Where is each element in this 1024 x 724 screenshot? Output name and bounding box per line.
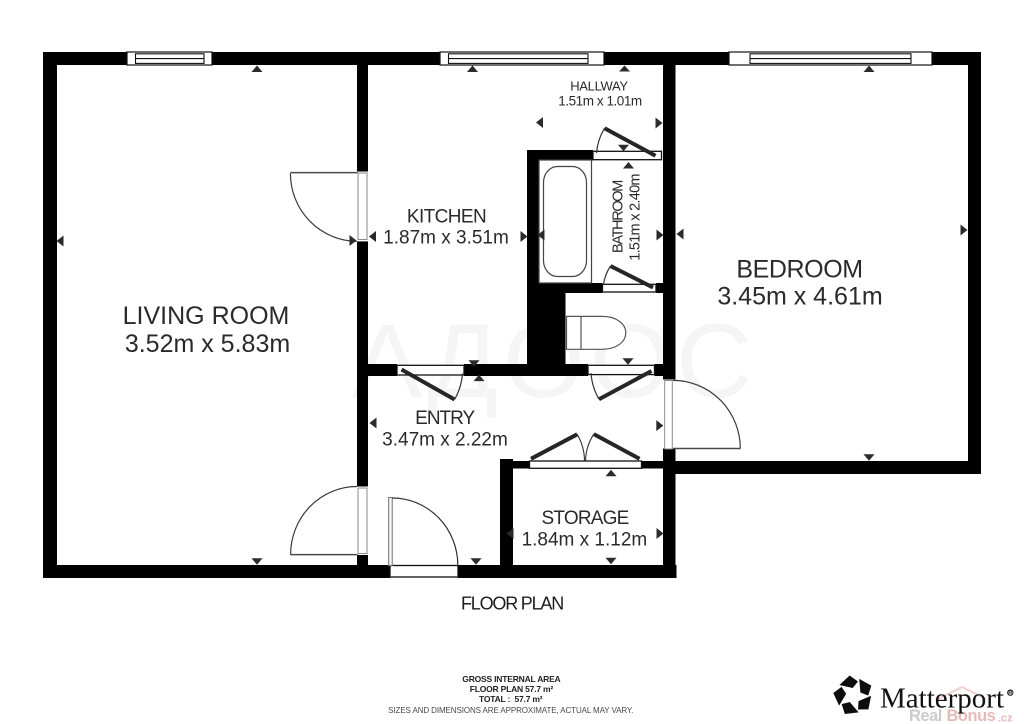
svg-text:ENTRY: ENTRY	[415, 408, 475, 429]
svg-text:BATHROOM: BATHROOM	[611, 181, 627, 253]
svg-text:KITCHEN: KITCHEN	[407, 206, 486, 227]
svg-text:1.87m x 3.51m: 1.87m x 3.51m	[383, 227, 509, 248]
svg-text:Matterport: Matterport	[880, 682, 1004, 714]
svg-text:LIVING ROOM: LIVING ROOM	[123, 302, 290, 330]
svg-text:HALLWAY: HALLWAY	[570, 79, 628, 94]
svg-text:1.51m x 2.40m: 1.51m x 2.40m	[628, 174, 644, 261]
svg-text:GROSS INTERNAL AREA: GROSS INTERNAL AREA	[462, 674, 560, 684]
svg-text:3.47m x 2.22m: 3.47m x 2.22m	[382, 429, 508, 450]
svg-text:FLOOR PLAN 57.7 m²: FLOOR PLAN 57.7 m²	[470, 684, 554, 694]
svg-text:FLOOR PLAN: FLOOR PLAN	[461, 593, 563, 613]
svg-text:BEDROOM: BEDROOM	[736, 256, 862, 284]
svg-text:TOTAL : 57.7 m²: TOTAL : 57.7 m²	[479, 694, 543, 704]
svg-text:R: R	[1008, 691, 1012, 697]
svg-text:3.45m x 4.61m: 3.45m x 4.61m	[717, 283, 882, 311]
svg-text:STORAGE: STORAGE	[542, 508, 629, 529]
svg-text:1.84m x 1.12m: 1.84m x 1.12m	[522, 529, 648, 550]
svg-text:1.51m x 1.01m: 1.51m x 1.01m	[558, 94, 642, 109]
svg-text:SIZES AND DIMENSIONS ARE APPRO: SIZES AND DIMENSIONS ARE APPROXIMATE, AC…	[388, 706, 633, 715]
svg-text:3.52m x 5.83m: 3.52m x 5.83m	[125, 330, 290, 358]
